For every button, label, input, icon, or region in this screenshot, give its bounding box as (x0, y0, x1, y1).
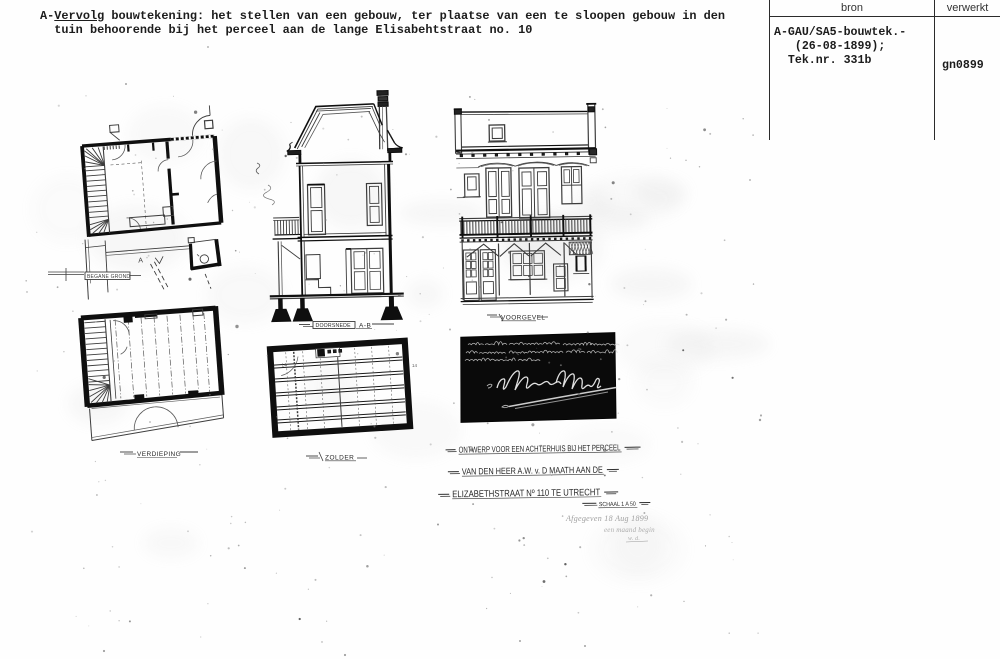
svg-text:een maand begin: een maand begin (604, 526, 655, 534)
svg-text:VOORGEVEL: VOORGEVEL (501, 315, 545, 322)
svg-text:A: A (138, 257, 143, 264)
svg-text:14: 14 (412, 363, 418, 368)
svg-text:BEGANE GROND: BEGANE GROND (87, 274, 130, 280)
svg-text:w. d.: w. d. (628, 536, 640, 542)
svg-text:ZOLDER: ZOLDER (325, 455, 354, 462)
svg-text:VERDIEPING: VERDIEPING (137, 451, 181, 458)
svg-text:Afgegeven 18 Aug 1899: Afgegeven 18 Aug 1899 (565, 514, 648, 523)
svg-text:14: 14 (281, 362, 287, 367)
svg-text:DOORSNEDE: DOORSNEDE (316, 323, 352, 329)
